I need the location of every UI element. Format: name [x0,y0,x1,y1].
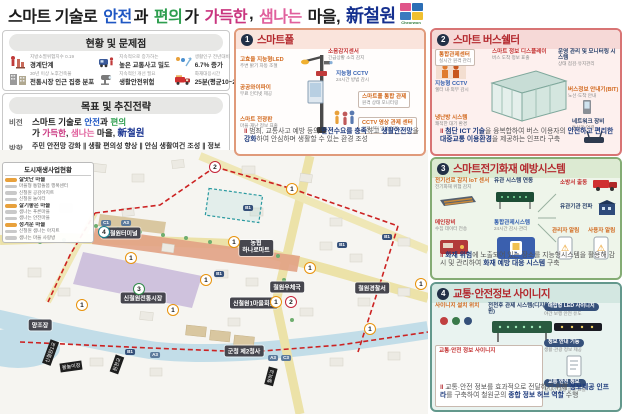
map-marker-1: 1 [228,236,240,248]
regen-badge [5,191,17,195]
location-icons [438,313,478,329]
vision-label: 비전 [9,117,27,128]
regeneration-status-box: 도시재생사업현황 살맛난 마을 마을형 통합돌봄 행복센터 신철원 공감아지트 … [2,162,94,243]
title-part-sincheorwon: 新철원 [346,2,396,28]
title-part: 가 [184,3,202,27]
map-tag-post-office: 철원우체국 [270,282,304,293]
zone-badge: A3 [268,355,278,361]
panel-smart-pole: 1 스마트폴 고효율 지능형LED주변 밝기 자동 조절 공공와이파이무료 인터… [234,28,426,156]
strategy-box-header: 목표 및 추진전략 [9,97,223,114]
firetruck-dispatch-icon [592,176,620,192]
stat-line2: 6.7% 증가 [195,60,230,69]
map-tag-hanaro-mart: 농협하나로마트 [239,240,273,256]
panel2-caption: 첨단 ICT 기술을 융복합하여 버스 이용자의 안전하고 편리한 대중교통 이… [440,128,615,146]
bus-shelter-illustration [484,65,570,127]
map-marker-1: 1 [286,183,298,195]
regen-badge [5,198,17,202]
map-tag-brewery: 양조장 [29,320,52,331]
panel2-number-icon: 2 [437,34,449,46]
zone-badge: A3 [150,352,160,358]
map-marker-2: 2 [285,296,297,308]
map-marker-1: 1 [415,278,427,290]
callout-control-center: 통합관제센터실시간 원격 관리 [435,49,475,66]
zone-badge: B1 [214,271,224,277]
panel3-title: 스마트전기화재 예방시스템 [453,161,565,176]
stat-line2: 전통시장 인근 집중 분포 [30,77,94,86]
callout-led: 고효율 지능형LED주변 밝기 자동 조절 [240,57,284,68]
callout-hvac: 냉난방 시스템쾌적한 대기 환경 [435,115,467,126]
title-part: 스마트 기술로 [8,3,101,27]
map-marker-1: 1 [270,296,282,308]
panel4-number-icon: 4 [437,288,449,300]
cheorwon-logo-text: Cheorwon [398,20,424,25]
map-marker-1: 1 [200,274,212,286]
callout-manager-alert: 관리자 알림 [552,228,579,234]
regen-badge [5,217,17,221]
title-part: , [249,6,257,24]
panel-info-signage: 4 교통·안전정보 사이니지 사이니지 설치 위치 전천후 관제 시스템(디지털… [430,282,622,412]
map-tag-police-station: 철원경찰서 [355,283,389,294]
panel4-caption: 교통·안전 정보를 효과적으로 전달하기 위해 정보제공 인프라를 구축하여 철… [440,384,615,402]
agency-building-icon [596,200,618,216]
callout-ops-monitoring: 운영 관리 및 모니터링 시스템상태 점검·유지관리 [558,49,620,66]
panel4-body: 사이니지 설치 위치 전천후 관제 시스템(디지털 트윈) 교통·안전 정보 사… [432,301,620,384]
callout-embedded-led: 매립형 LED 사이니지야간 보행 안전 유도 [544,303,599,316]
callout-iot-sensor: 전기선로 감지 IoT 센서전기화재 위험 감지 [435,178,489,189]
callout-signage-locations: 사이니지 설치 위치 [435,303,479,309]
stat-line2: 높은 교통사고 밀도 [119,60,170,69]
map-tag-traditional-market: 신철원전통시장 [121,293,166,304]
panel3-body: 전기선로 감지 IoT 센서전기화재 위험 감지 메인장비수집 데이터 전송 유… [432,176,620,252]
callout-pole-control: 스마트폴 통합 관제원격 상태 모니터링 [358,91,410,108]
title-part: 마을, [304,3,344,27]
page-title: 스마트 기술로 안전 과 편의 가 가득한 , 샘나는 마을, 新철원 [8,2,396,28]
zone-badge: B1 [382,234,392,240]
title-part-safety: 안전 [103,3,131,27]
panel1-caption: 범죄, 교통사고 예방 등의 안전수요를 충족하고 생활안전망을 강화하여 안심… [244,128,419,146]
stat-line2: 경계단계 [30,60,74,69]
stat-line2: 생활안전위험 [119,77,155,86]
stat-item: 지속적으로 증가하는높은 교통사고 밀도 [98,54,170,69]
population-growth-icon [174,55,192,69]
regen-badge [5,204,17,208]
panel-smart-bus-shelter: 2 스마트 버스쉘터 통합관제센터실시간 원격 관리 지능형 CCTV쉘터 내·… [430,28,622,156]
regen-badge [5,230,17,234]
panel2-body: 통합관제센터실시간 원격 관리 지능형 CCTV쉘터 내·외부 감시 냉난방 시… [432,47,620,128]
cheorwon-logo: Cheorwon [398,3,424,25]
busbar-icon [438,194,478,214]
map-marker-1: 1 [364,323,376,335]
callout-user-alert: 사용자 알림 [588,228,615,234]
title-part-springing: 샘나는 [259,3,302,27]
status-problems-box: 현황 및 문제점 지방소멸위험지수 0.19경계단계 지속적으로 증가하는높은 … [2,30,230,91]
pedestrians-icon [332,109,356,129]
panel1-title: 스마트폴 [257,32,294,47]
map-marker-2: 2 [209,161,221,173]
vision-text: 스마트 기술로 안전과 편의가 가득한, 샘나는 마을, 新철원 [32,117,223,141]
zone-badge: C3 [281,355,291,361]
regen-badge [5,210,17,214]
callout-shelter-cctv: 지능형 CCTV쉘터 내·외부 감시 [435,81,469,92]
title-part-convenience: 편의 [154,3,182,27]
stat-item: 지방소멸위험지수 0.19경계단계 [9,54,94,69]
regen-badge [5,178,17,182]
callout-wifi: 공공와이파이무료 인터넷 제공 [240,85,272,96]
regen-badge [5,185,17,189]
callout-system-link: 유관 시스템 연동 [494,178,533,184]
callout-noise-sensor: 소음감지센서긴급상황 소리 감지 [328,49,364,60]
status-grid: 지방소멸위험지수 0.19경계단계 지속적으로 증가하는높은 교통사고 밀도 생… [7,54,225,86]
map-marker-4: 4 [98,226,110,238]
callout-bit: 버스정보 안내기(BIT)노선·도착 안내 [568,87,618,98]
panel1-number-icon: 1 [241,34,253,46]
zone-badge: B1 [125,349,135,355]
map-tag-county-office: 군청 제2청사 [225,346,264,357]
title-part-full: 가득한 [204,3,247,27]
panel4-title: 교통·안전정보 사이니지 [453,286,550,301]
zone-badge: B1 [337,242,347,248]
traffic-accident-icon [98,55,116,69]
info-doc-icon [564,355,584,377]
zone-badge: A3 [121,220,131,226]
callout-agency-alert: 유관기관 전파 [560,204,592,210]
zone-badge: B1 [243,205,253,211]
flow-arrows [536,184,560,254]
stat-item: 지속적인 개선 필요생활안전위험 [98,71,170,86]
poster-page: 스마트 기술로 안전 과 편의 가 가득한 , 샘나는 마을, 新철원 Cheo… [0,0,625,414]
panel3-caption: 화재 위험에 노출되어 있는 장소를 지능형시스템을 활용해 감시 및 관리하여… [440,252,615,270]
map-marker-1: 1 [304,262,316,274]
population-decline-icon [9,55,27,69]
callout-info-display: 스마트 정보 디스플레이버스 도착 정보 표출 [492,49,547,60]
stat-item: 30년 이상 노후건축물전통시장 인근 집중 분포 [9,71,94,86]
firetruck-icon [174,72,192,86]
status-box-header: 현황 및 문제점 [9,34,223,51]
panel3-number-icon: 3 [437,163,449,175]
embedded-led-icon [552,321,604,333]
callout-fire-dispatch: 소방서 출동 [560,180,587,186]
panel2-title: 스마트 버스쉘터 [453,32,520,47]
regen-header: 도시재생사업현황 [5,164,91,176]
map-marker-3: 3 [133,283,145,295]
map-marker-1: 1 [125,252,137,264]
led-sign-icon [492,190,538,210]
kiosk-icon [576,99,598,117]
callout-main-device: 메인장비수집 데이터 전송 [435,220,467,231]
map-marker-1: 1 [167,304,179,316]
map-marker-1: 1 [76,299,88,311]
vision-row: 비전 스마트 기술로 안전과 편의가 가득한, 샘나는 마을, 新철원 [9,117,223,141]
callout-info-guide: 정보 안내 기능생활·관광 정보 제공 [544,339,584,352]
callout-control-system: 통합관제시스템24시간 감시·관리 [494,220,530,231]
callout-cctv: 지능형 CCTV24시간 방범 감시 [336,71,369,82]
old-buildings-icon [9,72,27,86]
cctv-icon [98,72,116,86]
cheorwon-logo-icon [400,3,423,20]
regen-badge [5,236,17,240]
panel-fire-prevention: 3 스마트전기화재 예방시스템 전기선로 감지 IoT 센서전기화재 위험 감지… [430,157,622,280]
regen-badge [5,223,17,227]
regen-item: 샘나는 마을 사랑방 [5,235,91,241]
panel1-body: 고효율 지능형LED주변 밝기 자동 조절 공공와이파이무료 인터넷 제공 스마… [236,47,424,128]
title-part: 과 [134,3,152,27]
callout-signboard: 스마트 전광판마을·재난 정보 표출 [240,117,278,128]
